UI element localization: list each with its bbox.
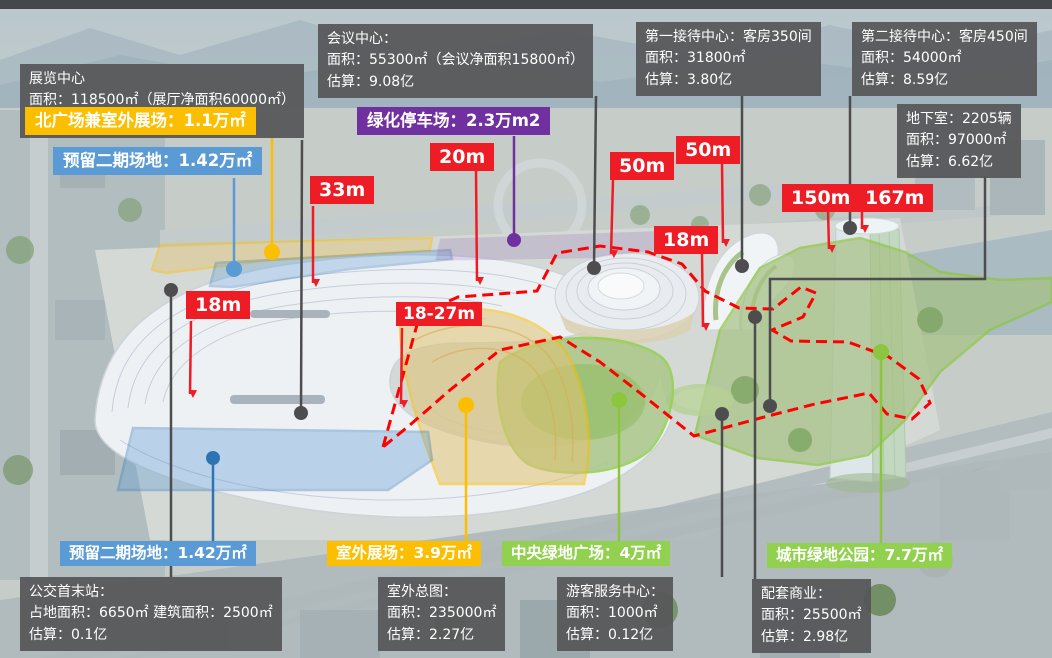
- info-line: 面积：25500㎡: [761, 605, 862, 626]
- info-line: 室外总图：: [387, 582, 496, 603]
- info-line: 游客服务中心：: [566, 582, 664, 603]
- info-line: 面积：97000㎡: [906, 130, 1012, 151]
- info-line: 展览中心: [29, 69, 295, 90]
- info-line: 配套商业：: [761, 584, 862, 605]
- info-line: 估算：2.98亿: [761, 627, 862, 648]
- info-line: 面积：31800㎡: [645, 48, 812, 69]
- info-line: 公交首末站：: [29, 582, 273, 603]
- conference-dome-building: [555, 253, 699, 344]
- info-line: 第二接待中心：客房450间: [861, 27, 1028, 48]
- area-label-green-parking: 绿化停车场：2.3万m2: [357, 107, 550, 135]
- info-line: 估算：6.62亿: [906, 152, 1012, 173]
- area-label-reserved-phase2-bottom: 预留二期场地：1.42万㎡: [60, 541, 256, 566]
- measure-tag-18m-mid: 18m: [654, 226, 718, 254]
- measure-tag-150m: 150m: [782, 184, 859, 212]
- measure-tag-18-27m: 18-27m: [396, 302, 482, 326]
- measure-tag-167m: 167m: [856, 184, 933, 212]
- info-line: 会议中心：: [327, 29, 584, 50]
- info-line: 估算：3.80亿: [645, 70, 812, 91]
- info-line: 第一接待中心：客房350间: [645, 27, 812, 48]
- info-box-conference-center: 会议中心： 面积：55300㎡（会议净面积15800㎡） 估算：9.08亿: [318, 24, 593, 98]
- measure-tag-18m-left: 18m: [186, 291, 250, 319]
- info-line: 面积：55300㎡（会议净面积15800㎡）: [327, 50, 584, 71]
- info-box-outdoor-master: 室外总图： 面积：235000㎡ 估算：2.27亿: [378, 577, 505, 651]
- slide-canvas: { "title": "会展中心项目总体指标标注图", "colors": { …: [0, 0, 1052, 658]
- info-line: 估算：0.1亿: [29, 625, 273, 646]
- info-box-basement: 地下室：2205辆 面积：97000㎡ 估算：6.62亿: [897, 104, 1021, 178]
- info-box-retail: 配套商业： 面积：25500㎡ 估算：2.98亿: [752, 579, 871, 653]
- measure-tag-50m-right: 50m: [676, 136, 740, 164]
- area-label-reserved-phase2-top: 预留二期场地：1.42万㎡: [53, 147, 262, 175]
- info-line: 面积：54000㎡: [861, 48, 1028, 69]
- info-line: 估算：2.27亿: [387, 625, 496, 646]
- info-box-visitor-center: 游客服务中心： 面积：1000㎡ 估算：0.12亿: [557, 577, 673, 651]
- measure-tag-50m-left: 50m: [610, 152, 674, 180]
- area-label-outdoor-exhibition: 室外展场：3.9万㎡: [327, 541, 481, 566]
- info-box-bus-station: 公交首末站： 占地面积：6650㎡ 建筑面积：2500㎡ 估算：0.1亿: [20, 577, 282, 651]
- area-label-central-green-plaza: 中央绿地广场：4万㎡: [502, 541, 670, 566]
- info-box-reception2: 第二接待中心：客房450间 面积：54000㎡ 估算：8.59亿: [852, 22, 1037, 96]
- info-line: 估算：0.12亿: [566, 625, 664, 646]
- info-line: 估算：8.59亿: [861, 70, 1028, 91]
- area-label-north-plaza: 北广场兼室外展场：1.1万㎡: [25, 107, 256, 135]
- info-line: 估算：9.08亿: [327, 72, 584, 93]
- info-line: 地下室：2205辆: [906, 109, 1012, 130]
- info-line: 面积：235000㎡: [387, 603, 496, 624]
- area-label-city-green-park: 城市绿地公园：7.7万㎡: [767, 543, 952, 568]
- measure-tag-20m: 20m: [430, 143, 494, 171]
- measure-tag-33m: 33m: [310, 176, 374, 204]
- info-line: 面积：1000㎡: [566, 603, 664, 624]
- info-line: 占地面积：6650㎡ 建筑面积：2500㎡: [29, 603, 273, 624]
- info-box-reception1: 第一接待中心：客房350间 面积：31800㎡ 估算：3.80亿: [636, 22, 821, 96]
